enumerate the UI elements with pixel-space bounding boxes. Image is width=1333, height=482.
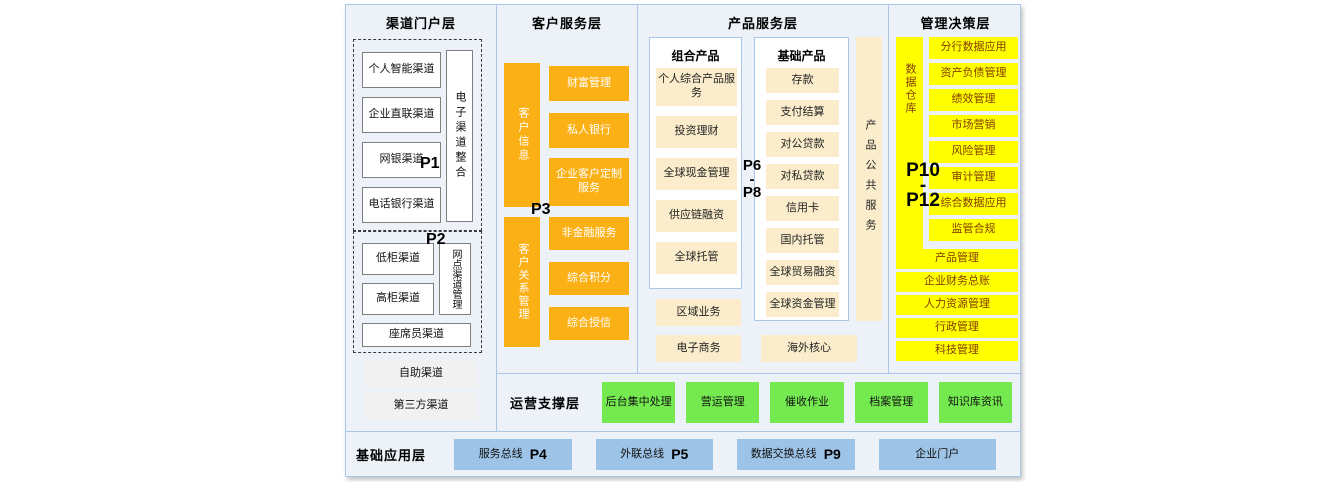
p10-p12-label: P10 - P12 (899, 160, 947, 211)
diagram-node: 对私贷款 (766, 164, 839, 189)
diagram-node: 个人综合产品服务 (656, 68, 737, 106)
diagram-node: 自助渠道 (364, 361, 478, 387)
diagram-node: 企业财务总账 (896, 272, 1018, 292)
diagram-node: 私人银行 (549, 113, 629, 148)
diagram-node: 座席员渠道 (362, 323, 471, 347)
customer-layer-column: 客户服务层 客户信息 财富管理 私人银行 企业客户定制服务 P3 客户关系管理 … (497, 5, 638, 373)
diagram-node: 知识库资讯 (939, 382, 1012, 423)
diagram-node: 对公贷款 (766, 132, 839, 157)
diagram-node: 高柜渠道 (362, 283, 434, 315)
diagram-node: 产品管理 (896, 249, 1018, 269)
vertical-node-data-warehouse: 数据仓库 (896, 37, 923, 251)
vertical-node-customer-relationship-management: 客户关系管理 (504, 217, 540, 347)
diagram-node: 全球托管 (656, 242, 737, 274)
ops-boxes-row: 后台集中处理 营运管理 催收作业 档案管理 知识库资讯 (602, 382, 1012, 423)
base-boxes-row: 服务总线P4 外联总线P5 数据交换总线P9 企业门户 (454, 439, 996, 470)
electronic-channel-group: 个人智能渠道 企业直联渠道 网银渠道 电话银行渠道 电子渠道整合 P1 (353, 39, 482, 231)
bus-node-label: 外联总线 (620, 448, 664, 462)
vertical-node-branch-channel-management: 网点渠道管理 (439, 243, 471, 315)
bus-node: 服务总线P4 (454, 439, 572, 470)
diagram-node: 催收作业 (770, 382, 843, 423)
diagram-container: 渠道门户层 个人智能渠道 企业直联渠道 网银渠道 电话银行渠道 电子渠道整合 P… (345, 4, 1021, 477)
diagram-node: 存款 (766, 68, 839, 93)
p5-label: P5 (671, 446, 688, 464)
diagram-node: 行政管理 (896, 318, 1018, 338)
basic-products-panel: 基础产品 存款 支付结算 对公贷款 对私贷款 信用卡 国内托管 全球贸易融资 全… (754, 37, 849, 321)
diagram-node: 市场营销 (929, 115, 1018, 137)
p-range-end: P12 (899, 190, 947, 211)
diagram-node: 电话银行渠道 (362, 187, 441, 223)
diagram-node: 全球资金管理 (766, 292, 839, 317)
p9-label: P9 (824, 446, 841, 464)
bus-node-label: 数据交换总线 (751, 448, 817, 462)
diagram-node: 全球现金管理 (656, 158, 737, 190)
diagram-node: 全球贸易融资 (766, 260, 839, 285)
p4-label: P4 (530, 446, 547, 464)
vertical-node-electronic-channel-integration: 电子渠道整合 (446, 50, 473, 222)
diagram-node: 科技管理 (896, 341, 1018, 361)
diagram-node: 海外核心 (761, 335, 857, 362)
diagram-node: 人力资源管理 (896, 295, 1018, 315)
diagram-node: 信用卡 (766, 196, 839, 221)
bus-node: 企业门户 (879, 439, 997, 470)
diagram-node: 营运管理 (686, 382, 759, 423)
p6-p8-label: P6 - P8 (737, 157, 767, 202)
bus-node: 外联总线P5 (596, 439, 714, 470)
p-range-end: P8 (737, 184, 767, 202)
product-layer-column: 产品服务层 组合产品 个人综合产品服务 投资理财 全球现金管理 供应链融资 全球… (638, 5, 889, 373)
diagram-node: 非金融服务 (549, 217, 629, 250)
diagram-node: 综合授信 (549, 307, 629, 340)
diagram-node: 国内托管 (766, 228, 839, 253)
diagram-node: 供应链融资 (656, 200, 737, 232)
base-layer-title: 基础应用层 (356, 432, 426, 477)
diagram-node: 财富管理 (549, 66, 629, 101)
p2-label: P2 (426, 232, 446, 248)
base-layer-band: 基础应用层 服务总线P4 外联总线P5 数据交换总线P9 企业门户 (346, 431, 1020, 477)
ops-layer-title: 运营支撑层 (510, 374, 580, 431)
ops-layer-band: 运营支撑层 后台集中处理 营运管理 催收作业 档案管理 知识库资讯 (497, 373, 1022, 431)
vertical-node-product-public-services: 产品公共服务 (856, 37, 882, 321)
branch-channel-group: 低柜渠道 高柜渠道 网点渠道管理 座席员渠道 P2 (353, 231, 482, 353)
diagram-node: 第三方渠道 (364, 393, 478, 419)
combo-products-panel: 组合产品 个人综合产品服务 投资理财 全球现金管理 供应链融资 全球托管 (649, 37, 742, 289)
channel-layer-title: 渠道门户层 (346, 13, 496, 32)
customer-layer-title: 客户服务层 (497, 13, 637, 32)
combo-products-title: 组合产品 (650, 47, 741, 64)
management-layer-title: 管理决策层 (889, 13, 1022, 32)
architecture-diagram: 渠道门户层 个人智能渠道 企业直联渠道 网银渠道 电话银行渠道 电子渠道整合 P… (0, 0, 1333, 482)
vertical-node-customer-information: 客户信息 (504, 63, 540, 207)
management-layer-column: 管理决策层 数据仓库 P10 - P12 分行数据应用 资产负债管理 绩效管理 … (889, 5, 1022, 373)
p1-label: P1 (420, 156, 440, 172)
p-range-dash: - (737, 175, 767, 184)
bus-node-label: 服务总线 (479, 448, 523, 462)
diagram-node: 综合积分 (549, 262, 629, 295)
diagram-node: 监管合规 (929, 219, 1018, 241)
diagram-node: 投资理财 (656, 116, 737, 148)
diagram-node: 分行数据应用 (929, 37, 1018, 59)
diagram-node: 个人智能渠道 (362, 52, 441, 88)
diagram-node: 电子商务 (656, 335, 741, 362)
basic-products-title: 基础产品 (755, 47, 848, 64)
p3-label: P3 (531, 202, 551, 218)
bus-node-label: 企业门户 (915, 448, 959, 462)
diagram-node: 支付结算 (766, 100, 839, 125)
ops-layer-title-text: 运营支撑层 (510, 393, 580, 412)
channel-layer-column: 渠道门户层 个人智能渠道 企业直联渠道 网银渠道 电话银行渠道 电子渠道整合 P… (346, 5, 497, 431)
diagram-node: 企业直联渠道 (362, 97, 441, 133)
diagram-node: 档案管理 (855, 382, 928, 423)
diagram-node: 资产负债管理 (929, 63, 1018, 85)
diagram-node: 区域业务 (656, 299, 741, 326)
diagram-node: 低柜渠道 (362, 243, 434, 275)
product-layer-title: 产品服务层 (638, 13, 888, 32)
diagram-node: 企业客户定制服务 (549, 158, 629, 206)
diagram-node: 后台集中处理 (602, 382, 675, 423)
p-range-dash: - (899, 181, 947, 190)
bus-node: 数据交换总线P9 (737, 439, 855, 470)
base-layer-title-text: 基础应用层 (356, 445, 426, 464)
diagram-node: 绩效管理 (929, 89, 1018, 111)
